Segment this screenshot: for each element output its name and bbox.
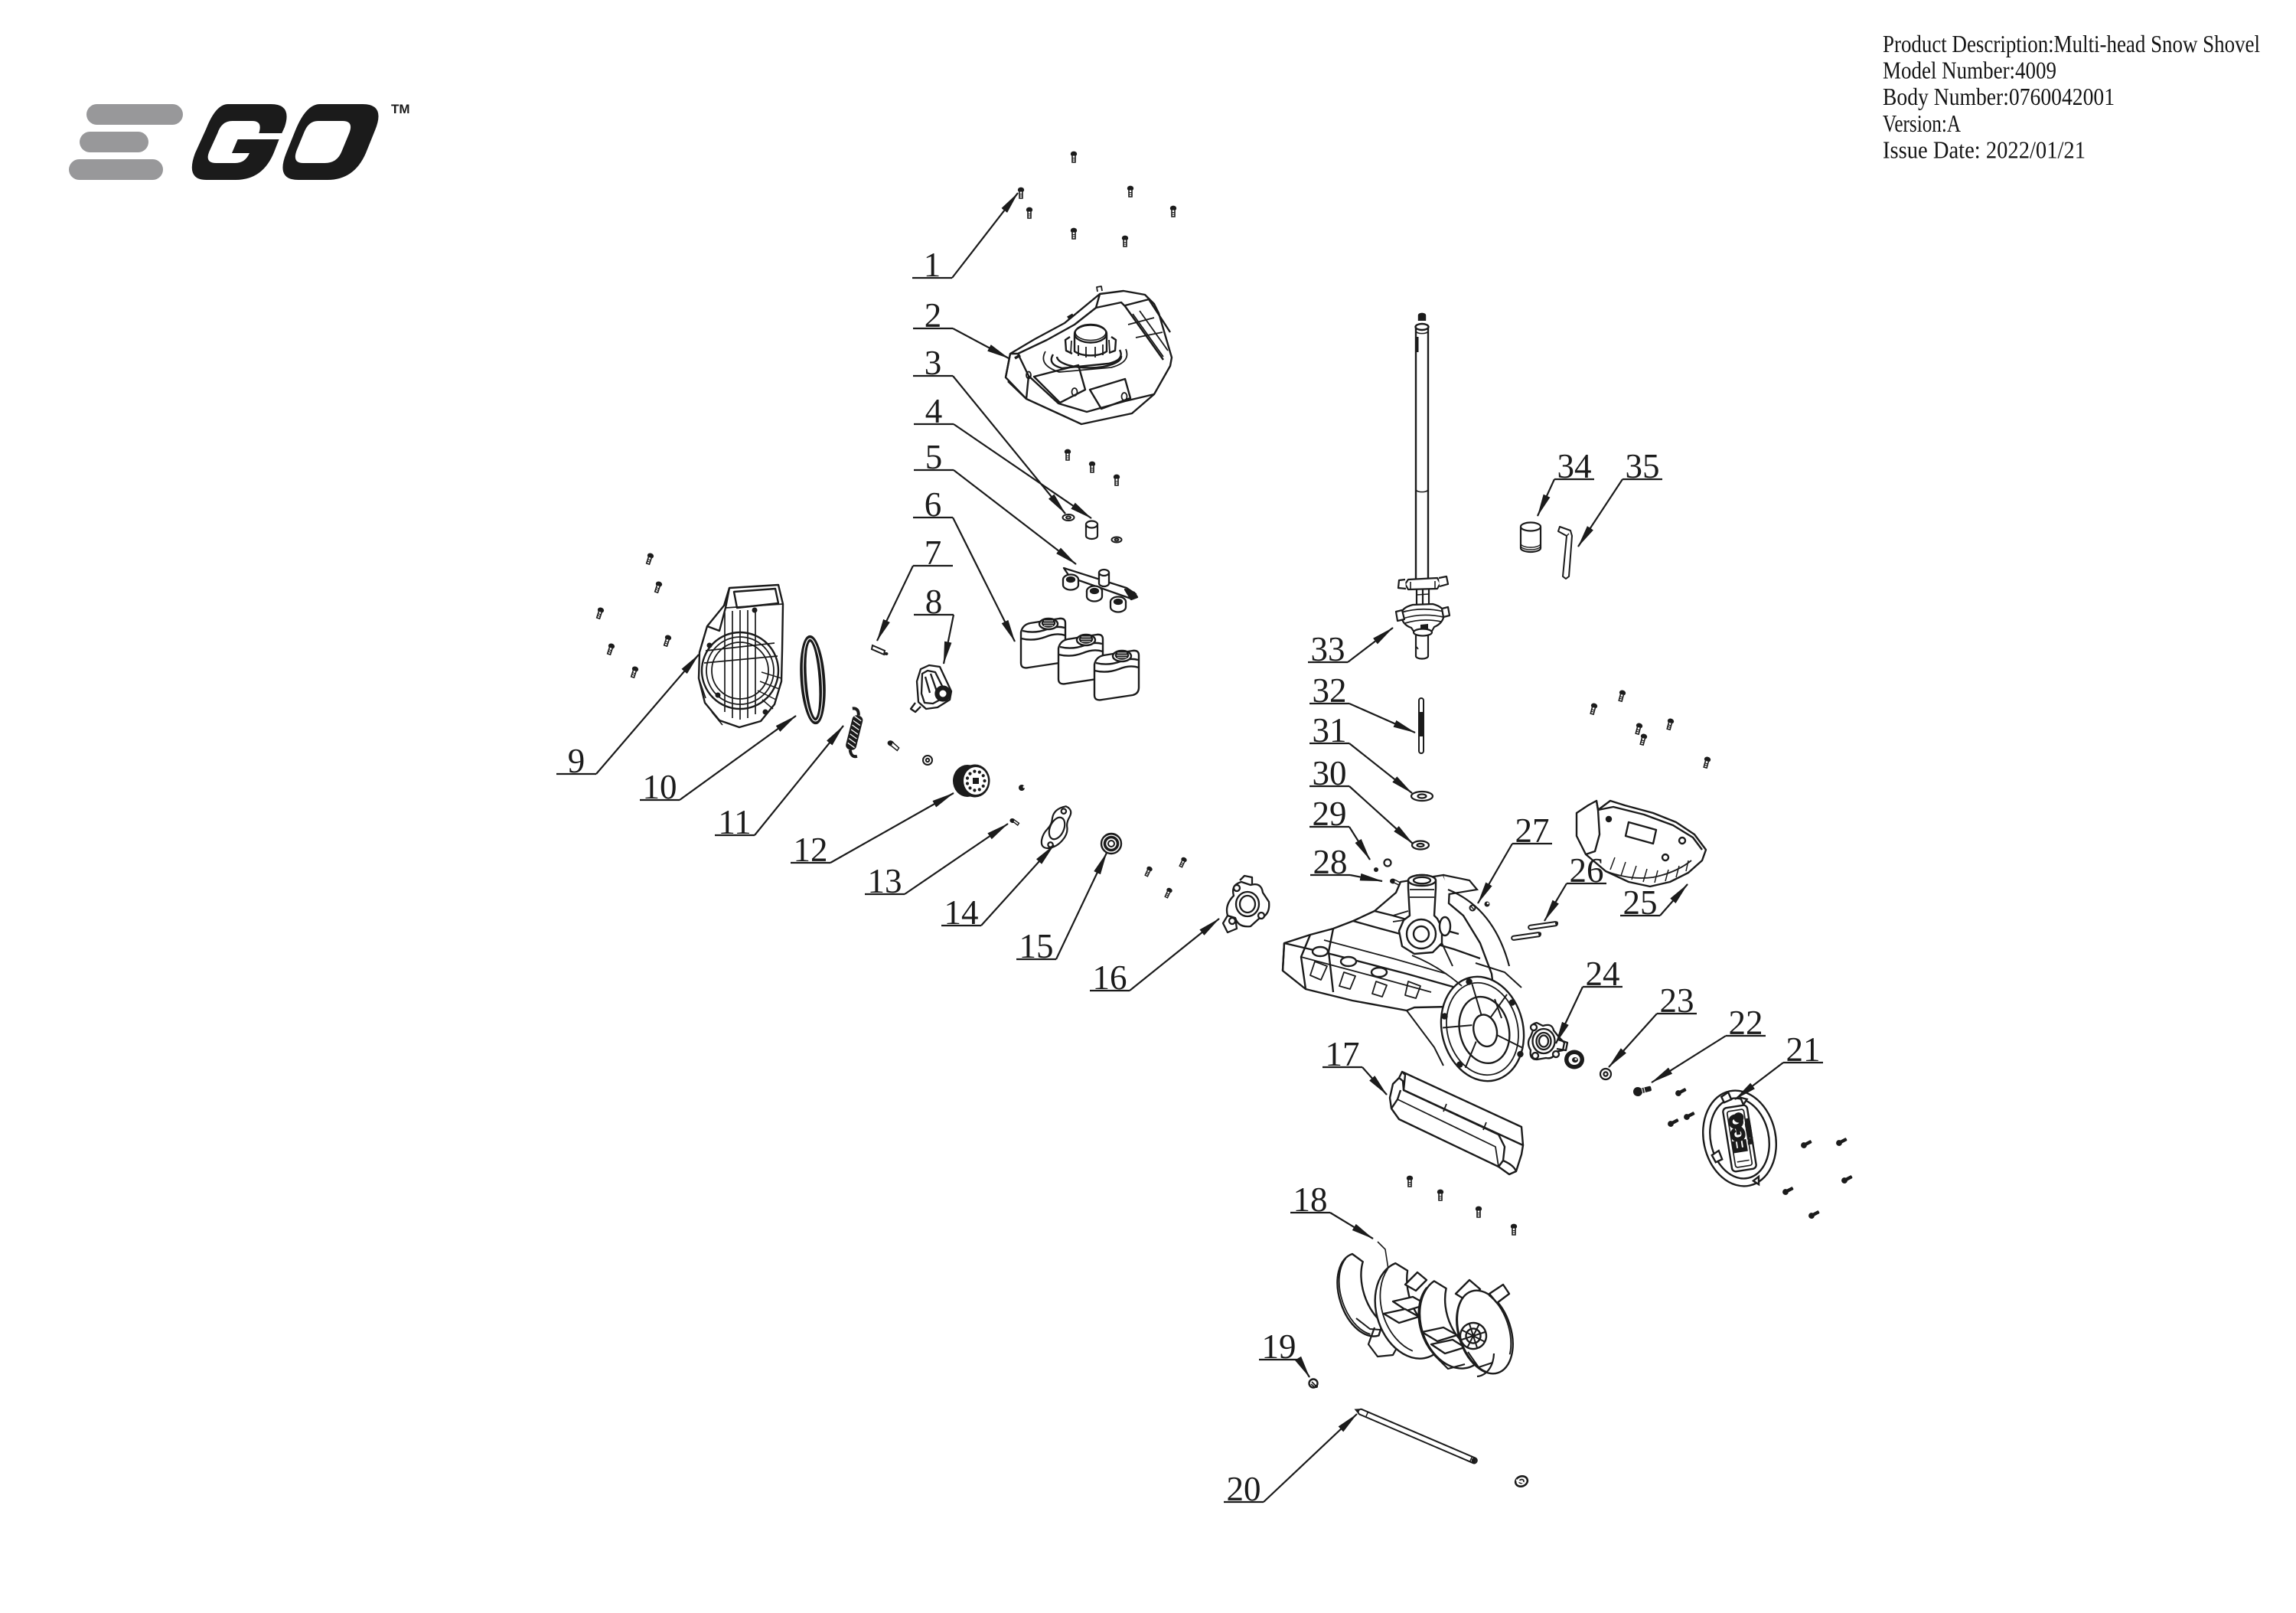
svg-text:Issue Date: 2022/01/21: Issue Date: 2022/01/21 — [1883, 136, 2086, 163]
svg-text:Body Number:0760042001: Body Number:0760042001 — [1883, 83, 2115, 110]
svg-text:Version:A: Version:A — [1883, 109, 1961, 137]
svg-text:Model Number:4009: Model Number:4009 — [1883, 57, 2056, 84]
svg-text:TM: TM — [391, 102, 410, 116]
svg-text:Product Description:Multi-head: Product Description:Multi-head Snow Shov… — [1883, 30, 2260, 57]
